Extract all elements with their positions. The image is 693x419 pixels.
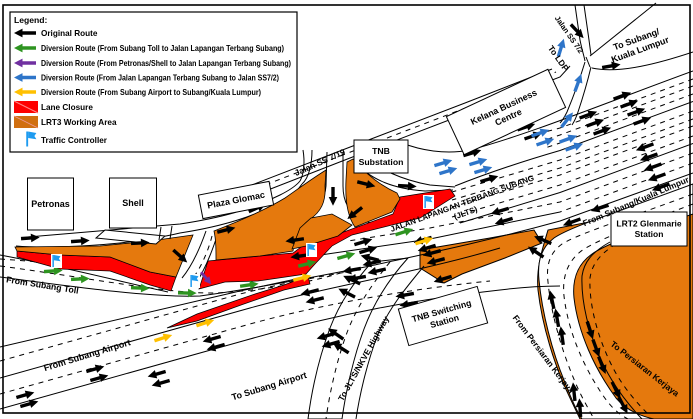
svg-text:Diversion Route (From Petronas: Diversion Route (From Petronas/Shell to … bbox=[41, 59, 291, 68]
svg-text:Lane Closure: Lane Closure bbox=[41, 103, 93, 112]
svg-text:Petronas: Petronas bbox=[31, 199, 70, 209]
svg-text:TNB: TNB bbox=[372, 146, 390, 156]
svg-text:Traffic Controller: Traffic Controller bbox=[41, 136, 108, 145]
svg-text:Original Route: Original Route bbox=[41, 29, 98, 38]
svg-text:Diversion Route (From Jalan La: Diversion Route (From Jalan Lapangan Ter… bbox=[41, 74, 279, 83]
svg-text:Diversion Route (From Subang T: Diversion Route (From Subang Toll to Jal… bbox=[41, 44, 284, 53]
svg-text:Shell: Shell bbox=[122, 198, 144, 208]
svg-text:Station: Station bbox=[635, 229, 664, 239]
svg-text:LRT2 Glenmarie: LRT2 Glenmarie bbox=[616, 219, 681, 229]
svg-text:Substation: Substation bbox=[359, 157, 404, 167]
svg-text:Diversion Route (From Subang A: Diversion Route (From Subang Airport to … bbox=[41, 88, 261, 97]
svg-text:Legend:: Legend: bbox=[14, 15, 48, 25]
svg-text:LRT3 Working Area: LRT3 Working Area bbox=[41, 118, 117, 127]
